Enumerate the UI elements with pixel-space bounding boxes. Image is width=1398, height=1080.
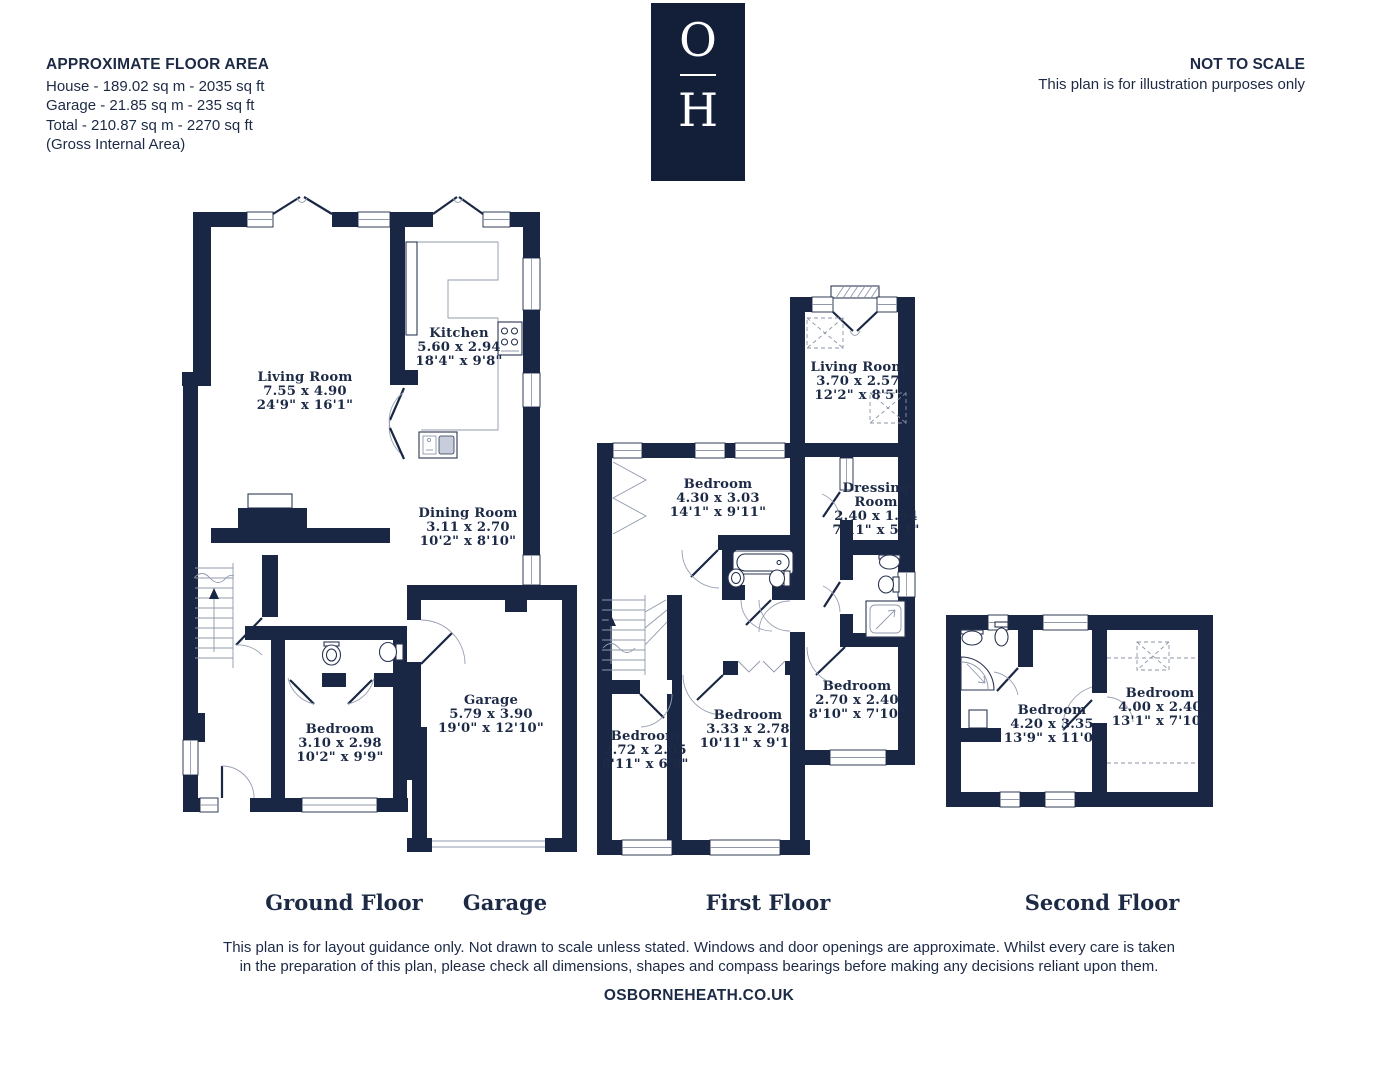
shower-symbol-second — [961, 657, 994, 690]
website-url: OSBORNEHEATH.CO.UK — [0, 987, 1398, 1005]
ground-floor-plan: Living Room 7.55 x 4.90 24'9" x 16'1" Ki… — [182, 197, 577, 852]
room-name: Bedroom — [714, 708, 783, 723]
garage-door-symbol — [432, 841, 545, 847]
sink-symbol-first-shower-room — [879, 555, 900, 569]
room-name: Kitchen — [429, 326, 489, 341]
room-imperial: 13'9" x 11'0" — [1004, 731, 1101, 746]
cabinet-symbol — [969, 710, 987, 728]
room-metric: 5.79 x 3.90 — [449, 707, 532, 722]
room-label-first-bedroom-4: Bedroom 2.72 x 2.05 8'11" x 6'9" — [601, 729, 688, 772]
shower-symbol-first — [866, 601, 905, 637]
room-name: Dressing — [842, 481, 909, 496]
room-name: Bedroom — [611, 729, 680, 744]
room-imperial: 14'1" x 9'11" — [670, 505, 767, 520]
toilet-symbol-second — [995, 622, 1008, 646]
floor-label-first: First Floor — [706, 890, 832, 915]
room-label-ground-living: Living Room 7.55 x 4.90 24'9" x 16'1" — [257, 370, 354, 413]
room-metric: 3.10 x 2.98 — [298, 736, 381, 751]
room-imperial: 13'1" x 7'10" — [1112, 714, 1209, 729]
sink-symbol-first-bath — [728, 569, 744, 587]
room-name: Bedroom — [684, 477, 753, 492]
room-label-dining: Dining Room 3.11 x 2.70 10'2" x 8'10" — [418, 506, 517, 549]
room-label-second-bedroom-2: Bedroom 4.00 x 2.40 13'1" x 7'10" — [1112, 686, 1209, 729]
room-name: Bedroom — [1018, 703, 1087, 718]
room-metric: 3.70 x 2.57 — [816, 374, 899, 389]
room-name: Living Room — [257, 370, 352, 385]
toilet-symbol-first-shower-room — [879, 576, 900, 593]
room-label-kitchen: Kitchen 5.60 x 2.94 18'4" x 9'8" — [415, 326, 502, 369]
room-metric: 2.72 x 2.05 — [603, 743, 686, 758]
floor-label-ground: Ground Floor — [265, 890, 423, 915]
floorplan-canvas: Living Room 7.55 x 4.90 24'9" x 16'1" Ki… — [0, 0, 1398, 1080]
floor-label-second: Second Floor — [1025, 890, 1180, 915]
sink-symbol-second — [961, 630, 983, 645]
room-imperial: 12'2" x 8'5" — [814, 388, 901, 403]
room-label-ground-bedroom: Bedroom 3.10 x 2.98 10'2" x 9'9" — [296, 722, 383, 765]
french-door-symbols — [273, 197, 483, 214]
room-metric: 2.40 x 1.54 — [834, 509, 917, 524]
room-label-garage: Garage 5.79 x 3.90 19'0" x 12'10" — [438, 693, 544, 736]
room-metric: 4.30 x 3.03 — [676, 491, 759, 506]
balcony-door-symbols — [833, 312, 877, 331]
room-imperial: 18'4" x 9'8" — [415, 354, 502, 369]
kitchen-sink-symbol — [419, 432, 457, 458]
floor-label-garage: Garage — [463, 890, 547, 915]
room-metric: 4.00 x 2.40 — [1118, 700, 1201, 715]
room-label-first-bedroom-3: Bedroom 3.33 x 2.78 10'11" x 9'1" — [700, 708, 797, 751]
disclaimer: This plan is for layout guidance only. N… — [0, 939, 1398, 976]
room-metric: 4.20 x 3.35 — [1010, 717, 1093, 732]
room-imperial: 8'10" x 7'10" — [809, 707, 906, 722]
room-metric: 3.11 x 2.70 — [426, 520, 509, 535]
hob-symbol — [498, 322, 522, 355]
room-metric: 7.55 x 4.90 — [263, 384, 346, 399]
room-name: Dining Room — [418, 506, 517, 521]
room-label-first-living: Living Room 3.70 x 2.57 12'2" x 8'5" — [810, 360, 905, 403]
toilet-symbol-ground-wc — [380, 643, 404, 662]
staircase-symbol-ground — [194, 563, 234, 668]
floorplan-page: { "header": { "floor_area_title": "APPRO… — [0, 0, 1398, 1080]
sink-symbol-ground-wc — [323, 642, 341, 665]
second-floor-plan: Bedroom 4.20 x 3.35 13'9" x 11'0" Bedroo… — [946, 615, 1213, 807]
room-name: Room — [854, 495, 897, 510]
room-imperial: 8'11" x 6'9" — [601, 757, 688, 772]
room-label-first-bedroom-2: Bedroom 2.70 x 2.40 8'10" x 7'10" — [809, 679, 906, 722]
room-label-second-bedroom-1: Bedroom 4.20 x 3.35 13'9" x 11'0" — [1004, 703, 1101, 746]
disclaimer-line-2: in the preparation of this plan, please … — [0, 958, 1398, 977]
room-metric: 3.33 x 2.78 — [706, 722, 789, 737]
room-imperial: 24'9" x 16'1" — [257, 398, 354, 413]
room-name: Bedroom — [1126, 686, 1195, 701]
toilet-symbol-first-bath — [770, 570, 791, 587]
room-imperial: 10'11" x 9'1" — [700, 736, 797, 751]
room-imperial: 19'0" x 12'10" — [438, 721, 544, 736]
bathroom-fixtures-second — [961, 622, 1008, 728]
room-name: Bedroom — [823, 679, 892, 694]
room-label-first-bedroom-1: Bedroom 4.30 x 3.03 14'1" x 9'11" — [670, 477, 767, 520]
room-name: Garage — [464, 693, 518, 708]
room-imperial: 10'2" x 8'10" — [420, 534, 517, 549]
first-floor-plan: Living Room 3.70 x 2.57 12'2" x 8'5" Bed… — [597, 286, 920, 855]
room-metric: 5.60 x 2.94 — [417, 340, 500, 355]
balcony-symbol — [831, 286, 879, 298]
room-name: Bedroom — [306, 722, 375, 737]
room-imperial: 10'2" x 9'9" — [296, 750, 383, 765]
disclaimer-line-1: This plan is for layout guidance only. N… — [0, 939, 1398, 958]
room-name: Living Room — [810, 360, 905, 375]
room-imperial: 7'11" x 5'1" — [832, 523, 919, 538]
room-metric: 2.70 x 2.40 — [815, 693, 898, 708]
room-label-dressing-room: Dressing Room 2.40 x 1.54 7'11" x 5'1" — [832, 481, 919, 538]
